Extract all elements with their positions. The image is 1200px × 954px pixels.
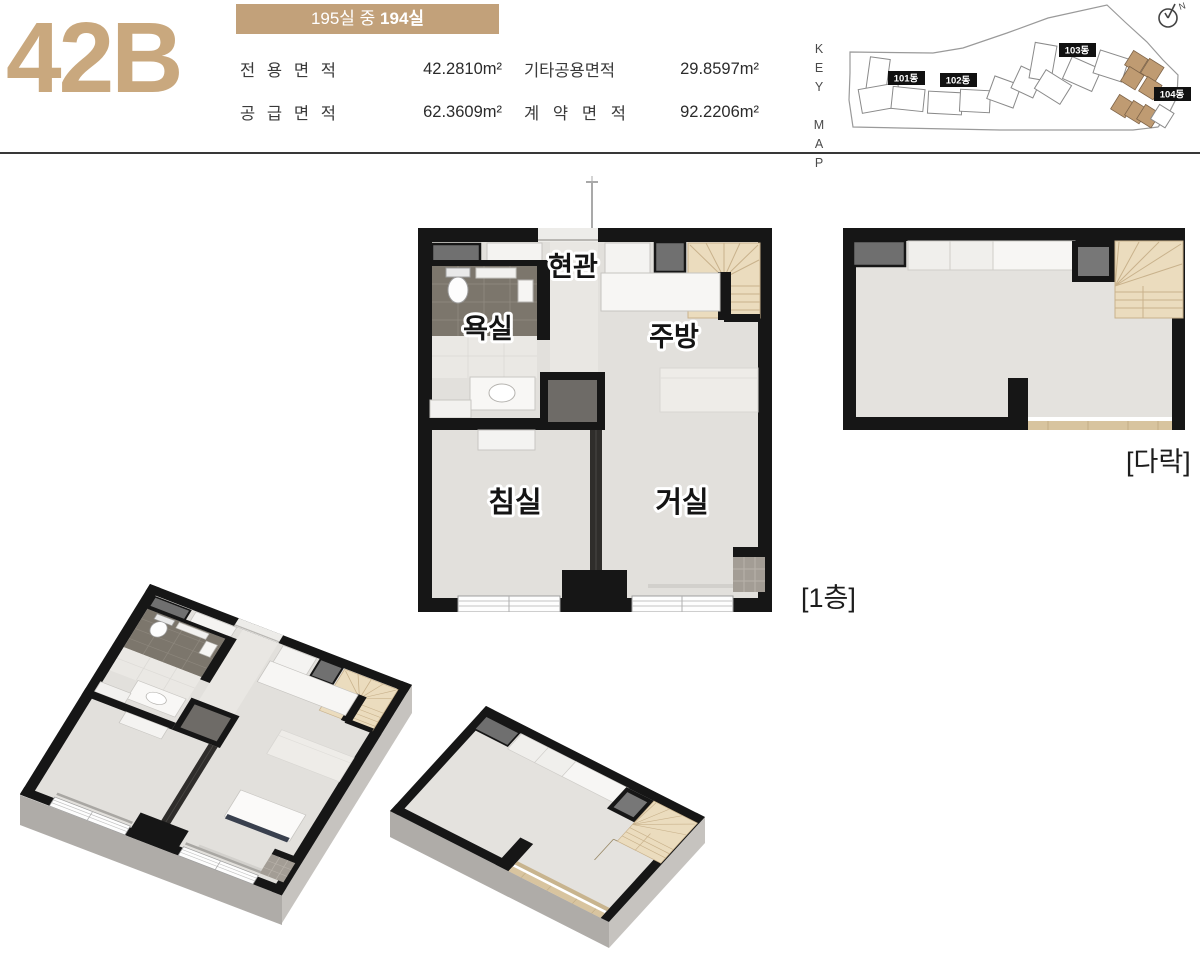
area-value-supply: 62.3609m² — [336, 103, 502, 122]
area-label-other-common: 기타공용면적 — [524, 57, 626, 81]
compass-north-label: N — [1178, 0, 1187, 12]
caption-attic: [다락] — [1126, 440, 1191, 479]
floor-plan-attic — [843, 228, 1185, 430]
area-value-exclusive: 42.2810m² — [336, 60, 502, 79]
room-label-entrance: 현관 — [548, 252, 598, 282]
area-label-supply: 공 급 면 적 — [240, 100, 336, 124]
area-label-exclusive: 전 용 면 적 — [240, 57, 336, 81]
iso-plan-1f-projection — [20, 584, 412, 895]
area-value-other-common: 29.8597m² — [626, 60, 759, 79]
isometric-3d-attic — [378, 686, 713, 954]
unit-count-prefix: 195실 중 — [311, 9, 380, 28]
badge-104: 104동 — [1160, 90, 1185, 101]
keymap-title: KEY MAP — [812, 42, 826, 175]
area-value-contract: 92.2206m² — [626, 103, 759, 122]
area-label-contract: 계 약 면 적 — [524, 100, 626, 124]
compass-icon — [1159, 4, 1177, 27]
brochure-page: 42B 195실 중 194실 전 용 면 적 42.2810m² 기타공용면적… — [0, 0, 1200, 954]
room-label-living: 거실 — [655, 486, 708, 519]
badge-103: 103동 — [1065, 46, 1090, 57]
header-divider — [0, 152, 1200, 154]
room-label-bedroom: 침실 — [488, 486, 541, 519]
isometric-3d-1f — [20, 572, 440, 954]
room-label-bathroom: 욕실 — [463, 314, 513, 344]
site-keymap: 101동 102동 103동 104동 N — [840, 0, 1200, 148]
room-label-kitchen: 주방 — [649, 322, 699, 352]
badge-102: 102동 — [946, 76, 971, 87]
badge-101: 101동 — [894, 74, 919, 85]
caption-floor1: [1층] — [801, 576, 856, 615]
door-swing-icon — [586, 176, 598, 228]
unit-count-bold: 194실 — [380, 9, 424, 28]
floor-plan-1f: 현관 욕실 주방 침실 거실 — [418, 168, 772, 612]
area-table: 전 용 면 적 42.2810m² 기타공용면적 29.8597m² 공 급 면… — [240, 57, 759, 124]
unit-count-badge: 195실 중 194실 — [236, 4, 499, 34]
unit-type-title: 42B — [6, 8, 180, 108]
